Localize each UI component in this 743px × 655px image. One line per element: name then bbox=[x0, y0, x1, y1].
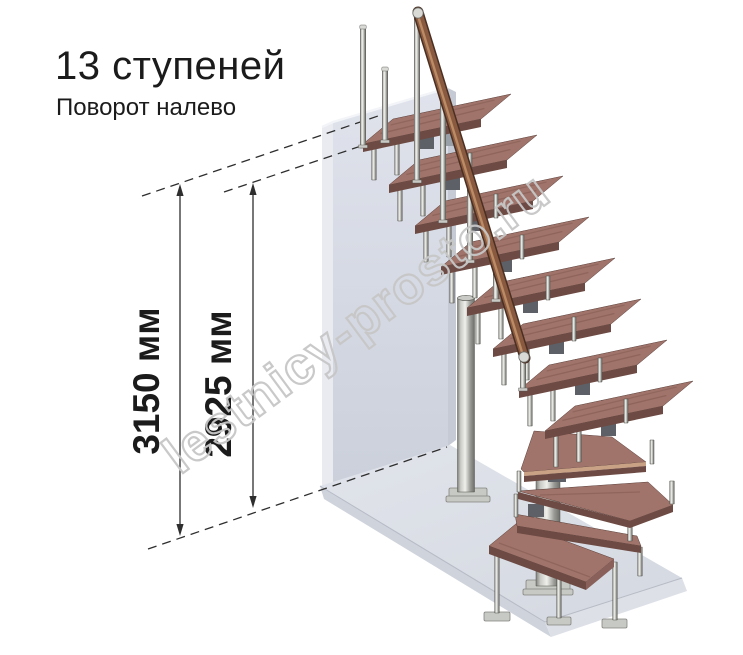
stair-diagram-canvas: 3150 мм 2925 мм lestnicy-prosto.ru 13 ст… bbox=[0, 0, 743, 655]
page-subtitle: Поворот налево bbox=[56, 94, 236, 122]
page-title: 13 ступеней bbox=[55, 44, 285, 88]
